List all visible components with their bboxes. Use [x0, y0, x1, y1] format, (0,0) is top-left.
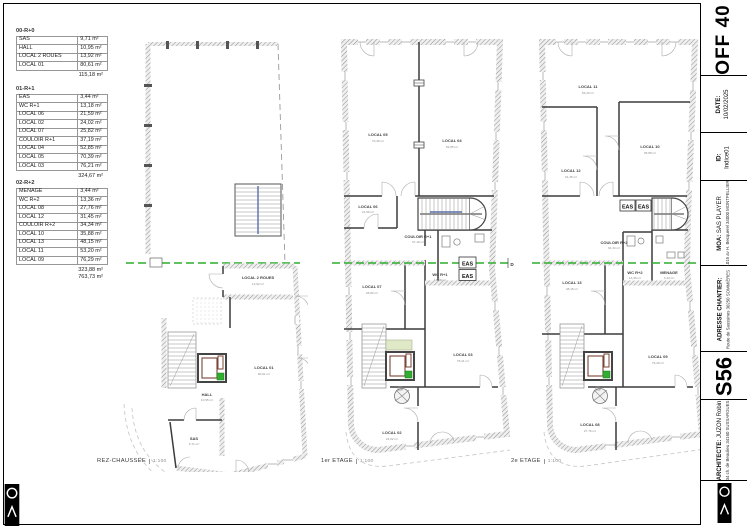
- svg-text:LOCAL 10: LOCAL 10: [640, 144, 660, 149]
- svg-text:37,19 m²: 37,19 m²: [412, 240, 424, 244]
- svg-text:31,45 m²: 31,45 m²: [565, 175, 577, 179]
- plan-1er-etage: D EAS EAS LOCAL 05 70,39 m² LOCAL 04 52,…: [330, 36, 516, 472]
- svg-text:3,44 m²: 3,44 m²: [664, 276, 675, 280]
- site-address: Route de Saussines 30250 SOMMIÈRES: [725, 269, 730, 348]
- table-row: COULOIR R+234,34 m²: [17, 222, 108, 231]
- surface-table: MENAGE3,44 m²WC R+213,36 m²LOCAL 0827,76…: [16, 188, 108, 266]
- table-row: MENAGE3,44 m²: [17, 188, 108, 197]
- architect-label: ARCHITECTE:: [717, 440, 723, 481]
- surface-table: EAS3,44 m²WC R+113,18 m²LOCAL 0621,59 m²…: [16, 94, 108, 172]
- elevator: [198, 354, 226, 382]
- svg-text:13,18 m²: 13,18 m²: [434, 278, 446, 282]
- svg-text:13,36 m²: 13,36 m²: [629, 276, 641, 280]
- stair-block: [418, 198, 486, 230]
- svg-text:EAS: EAS: [638, 205, 649, 211]
- svg-text:MENAGE: MENAGE: [660, 270, 678, 275]
- elevator: [584, 352, 612, 380]
- room-labels: LOCAL 05 70,39 m² LOCAL 04 52,85 m² LOCA…: [358, 132, 473, 441]
- svg-text:52,85 m²: 52,85 m²: [446, 145, 458, 149]
- site-label: ADRESSE CHANTIER:: [717, 277, 723, 341]
- svg-text:34,34 m²: 34,34 m²: [608, 246, 620, 250]
- eas-boxes: EAS EAS: [459, 257, 476, 281]
- table-row: WC R+113,18 m²: [17, 103, 108, 112]
- svg-text:D: D: [510, 262, 514, 267]
- svg-text:LOCAL 03: LOCAL 03: [453, 352, 473, 357]
- caption-scale: 1:100: [149, 459, 167, 464]
- stairs-core: [362, 324, 386, 388]
- table-row: LOCAL 0621,59 m²: [17, 111, 108, 120]
- fan-glyph: [593, 387, 608, 404]
- plan-2e-etage: D EAS EAS LOCAL 11 53,20 m² LOCAL 10 35,…: [530, 36, 710, 472]
- area-table-rdc: 00-R+0 SAS9,71 m²HALL10,95 m²LOCAL 2 ROU…: [16, 28, 108, 78]
- table-row: LOCAL 0827,76 m²: [17, 205, 108, 214]
- table-row: EAS3,44 m²: [17, 94, 108, 103]
- svg-text:LOCAL 13: LOCAL 13: [562, 280, 582, 285]
- svg-text:EAS: EAS: [622, 205, 633, 211]
- titleblock-sheet-code: OFF 40: [701, 3, 747, 76]
- svg-text:LOCAL 11: LOCAL 11: [578, 84, 598, 89]
- svg-text:76,29 m²: 76,29 m²: [652, 361, 664, 365]
- svg-text:LOCAL 06: LOCAL 06: [358, 204, 378, 209]
- caption-1er-etage: 1er ETAGE 1:100: [321, 458, 373, 464]
- partitions: [344, 42, 498, 450]
- table-total: 115,18 m²: [16, 71, 105, 79]
- wc-fixtures: [627, 236, 684, 258]
- svg-text:LOCAL 01: LOCAL 01: [254, 365, 274, 370]
- table-row: COULOIR R+137,19 m²: [17, 137, 108, 146]
- caption-label: REZ-CHAUSSEE: [97, 458, 146, 464]
- svg-text:53,20 m²: 53,20 m²: [582, 91, 594, 95]
- table-row: LOCAL 2 ROUES13,92 m²: [17, 53, 108, 62]
- fan-glyph: [395, 387, 410, 404]
- table-row: LOCAL 0180,61 m²: [17, 62, 108, 71]
- table-row: LOCAL 0725,82 m²: [17, 128, 108, 137]
- moa-address: 1015 av H. Becquerel 34000 MONTPELLIER: [725, 181, 730, 267]
- svg-text:LOCAL 02: LOCAL 02: [382, 430, 402, 435]
- table-row: LOCAL 0570,39 m²: [17, 154, 108, 163]
- titleblock-logo: [701, 481, 747, 524]
- table-total: 324,67 m²: [16, 171, 105, 179]
- svg-text:25,82 m²: 25,82 m²: [366, 291, 378, 295]
- table-row: LOCAL 0376,21 m²: [17, 162, 108, 171]
- table-row: HALL10,95 m²: [17, 45, 108, 54]
- architect-address: 34 ch. de Beaulieu 34160 SUSSARGUES: [725, 401, 730, 481]
- titleblock-architect: ARCHITECTE: JUZON Robin 34 ch. de Beauli…: [701, 400, 747, 481]
- svg-text:LOCAL 2 ROUES: LOCAL 2 ROUES: [242, 275, 275, 280]
- caption-2e-etage: 2e ETAGE 1:100: [511, 458, 561, 464]
- table-grand-total: 763,73 m²: [16, 273, 105, 281]
- titleblock-project-code: S56: [701, 352, 747, 400]
- svg-text:WC R+2: WC R+2: [627, 270, 643, 275]
- svg-text:24,02 m²: 24,02 m²: [386, 437, 398, 441]
- elevator: [386, 352, 414, 380]
- eas-boxes: EAS EAS: [620, 200, 651, 211]
- titleblock-moa: MOA: SAS PLAYER 1015 av H. Becquerel 340…: [701, 181, 747, 266]
- caption-rez-chaussee: REZ-CHAUSSEE 1:100: [97, 458, 167, 464]
- company-logo: [4, 484, 20, 526]
- date-value: 10/02/2025: [724, 89, 732, 119]
- date-label: DATE:: [716, 96, 722, 114]
- caption-scale: 1:100: [356, 459, 374, 464]
- svg-text:LOCAL 08: LOCAL 08: [580, 422, 600, 427]
- company-logo: [717, 483, 732, 523]
- svg-text:48,15 m²: 48,15 m²: [566, 287, 578, 291]
- sheet-code: OFF 40: [712, 4, 736, 74]
- table-row: SAS9,71 m²: [17, 36, 108, 45]
- table-title: 00-R+0: [16, 28, 108, 34]
- svg-text:80,61 m²: 80,61 m²: [258, 372, 270, 376]
- stair-block: [652, 198, 688, 230]
- titleblock-site: ADRESSE CHANTIER: Route de Saussines 302…: [701, 266, 747, 352]
- outer-wall: [344, 42, 507, 450]
- table-row: WC R+213,36 m²: [17, 197, 108, 206]
- svg-text:76,21 m²: 76,21 m²: [457, 359, 469, 363]
- caption-scale: 1:100: [544, 459, 562, 464]
- table-row: LOCAL 1153,20 m²: [17, 248, 108, 257]
- svg-text:HALL: HALL: [202, 392, 213, 397]
- stairs-core: [560, 324, 584, 388]
- table-title: 01-R+1: [16, 86, 108, 92]
- area-table-r2: 02-R+2 MENAGE3,44 m²WC R+213,36 m²LOCAL …: [16, 180, 108, 280]
- svg-text:COULOIR R+1: COULOIR R+1: [404, 234, 432, 239]
- table-subtotal: 323,88 m²: [16, 265, 105, 273]
- svg-text:SAS: SAS: [190, 436, 199, 441]
- stairs-upper: [235, 184, 281, 236]
- svg-text:13,92 m²: 13,92 m²: [252, 282, 264, 286]
- svg-text:LOCAL 12: LOCAL 12: [561, 168, 581, 173]
- svg-text:9,71 m²: 9,71 m²: [189, 442, 200, 446]
- svg-text:10,95 m²: 10,95 m²: [201, 398, 213, 402]
- table-row: LOCAL 1231,45 m²: [17, 214, 108, 223]
- drawing-sheet: 00-R+0 SAS9,71 m²HALL10,95 m²LOCAL 2 ROU…: [0, 0, 750, 530]
- stairs-lower: [168, 332, 196, 388]
- table-row: LOCAL 1035,88 m²: [17, 231, 108, 240]
- table-row: LOCAL 0976,29 m²: [17, 256, 108, 265]
- svg-text:27,76 m²: 27,76 m²: [584, 429, 596, 433]
- table-row: LOCAL 0452,85 m²: [17, 145, 108, 154]
- surface-table: SAS9,71 m²HALL10,95 m²LOCAL 2 ROUES13,92…: [16, 36, 108, 71]
- entry-mat: [193, 298, 221, 324]
- svg-text:70,39 m²: 70,39 m²: [372, 139, 384, 143]
- titleblock-id: ID: Indice01: [701, 133, 747, 181]
- caption-label: 1er ETAGE: [321, 458, 353, 464]
- svg-text:EAS: EAS: [462, 274, 473, 280]
- landing-green: [386, 340, 412, 350]
- table-title: 02-R+2: [16, 180, 108, 186]
- svg-text:21,59 m²: 21,59 m²: [362, 210, 374, 214]
- project-code: S56: [710, 356, 738, 395]
- section-line: D: [332, 258, 514, 268]
- title-block: OFF 40 DATE: 10/02/2025 ID: Indice01 MOA…: [700, 3, 747, 525]
- svg-text:LOCAL 07: LOCAL 07: [362, 284, 382, 289]
- svg-text:WC R+1: WC R+1: [432, 272, 448, 277]
- svg-text:35,88 m²: 35,88 m²: [644, 151, 656, 155]
- id-value: Indice01: [724, 146, 732, 169]
- wc-fixtures: [442, 234, 484, 247]
- area-table-r1: 01-R+1 EAS3,44 m²WC R+113,18 m²LOCAL 062…: [16, 86, 108, 179]
- svg-text:LOCAL 09: LOCAL 09: [648, 354, 668, 359]
- plan-rez-chaussee: LOCAL 2 ROUES 13,92 m² LOCAL 01 80,61 m²…: [118, 36, 308, 472]
- svg-text:EAS: EAS: [462, 262, 473, 268]
- svg-text:LOCAL 04: LOCAL 04: [442, 138, 462, 143]
- moa-value: SAS PLAYER: [717, 196, 723, 233]
- svg-text:LOCAL 05: LOCAL 05: [368, 132, 388, 137]
- titleblock-date: DATE: 10/02/2025: [701, 76, 747, 133]
- table-row: LOCAL 1348,15 m²: [17, 239, 108, 248]
- svg-text:COULOIR R+2: COULOIR R+2: [600, 240, 628, 245]
- id-label: ID:: [716, 153, 722, 161]
- section-line: D: [532, 258, 708, 268]
- outer-wall: [542, 42, 702, 450]
- moa-label: MOA:: [717, 235, 723, 251]
- caption-label: 2e ETAGE: [511, 458, 541, 464]
- architect-value: JUZON Robin: [717, 401, 723, 438]
- table-row: LOCAL 0224,02 m²: [17, 120, 108, 129]
